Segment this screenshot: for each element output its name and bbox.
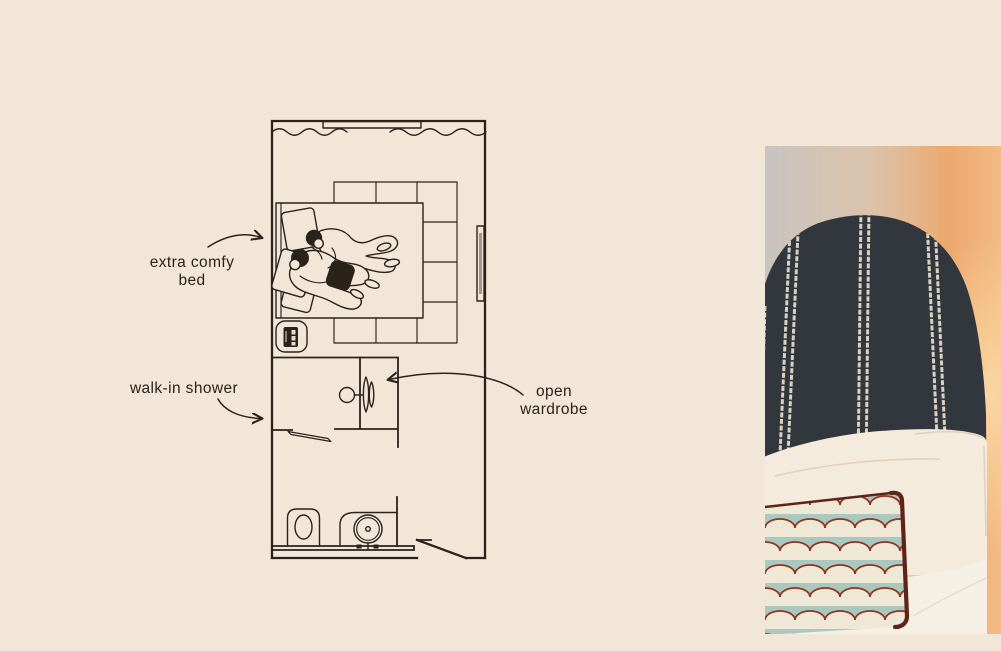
bathroom-walls bbox=[272, 358, 414, 551]
room-walls bbox=[272, 121, 485, 558]
toilet bbox=[288, 509, 320, 546]
label-line: extra comfy bbox=[116, 254, 268, 272]
arrow-wardrobe bbox=[389, 373, 523, 395]
label-line: bed bbox=[116, 272, 268, 290]
patterned-cushion bbox=[765, 493, 907, 634]
vanity-counter bbox=[272, 546, 414, 550]
room-photo bbox=[765, 146, 1001, 634]
label-line: walk-in shower bbox=[107, 380, 261, 398]
label-line: open bbox=[505, 383, 603, 401]
window-radiator bbox=[323, 122, 421, 129]
room-overview-section: extra comfy bed walk-in shower open ward… bbox=[0, 0, 1001, 651]
wall-mirror bbox=[477, 226, 484, 301]
label-line: wardrobe bbox=[505, 401, 603, 419]
label-extra-comfy-bed: extra comfy bed bbox=[116, 254, 268, 290]
clothes-hanger bbox=[340, 377, 374, 412]
entry-door bbox=[417, 540, 466, 558]
sink bbox=[340, 513, 397, 550]
label-walk-in-shower: walk-in shower bbox=[107, 380, 261, 398]
bedside-table bbox=[276, 321, 307, 352]
phone bbox=[284, 327, 299, 347]
label-open-wardrobe: open wardrobe bbox=[505, 383, 603, 419]
arrow-bed bbox=[208, 235, 261, 247]
bed bbox=[271, 203, 423, 318]
curtains bbox=[272, 129, 486, 136]
shower-door bbox=[288, 432, 331, 442]
arrow-shower bbox=[218, 399, 261, 419]
